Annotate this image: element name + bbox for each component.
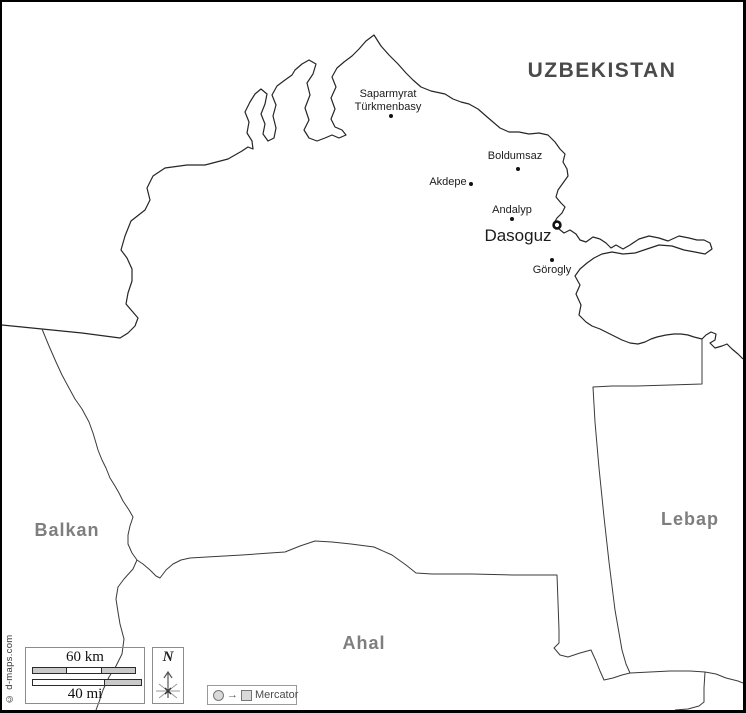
scale-bar-box: 60 km 40 mi <box>25 647 145 704</box>
city-label-boldumsaz: Boldumsaz <box>488 150 542 163</box>
scale-segment <box>33 668 66 673</box>
scale-bar-mi <box>32 679 142 686</box>
capital-label-dasoguz: Dasoguz <box>484 226 551 246</box>
city-label-line1: Saparmyrat <box>360 88 417 100</box>
bottom-right-border-path <box>675 672 705 710</box>
scale-segment <box>66 668 100 673</box>
globe-circle-icon <box>213 690 224 701</box>
map-frame: UZBEKISTAN Balkan Lebap Ahal Saparmyrat … <box>0 0 746 713</box>
scale-bar-km <box>32 667 136 674</box>
scale-segment <box>101 668 135 673</box>
international-border-path <box>2 35 743 359</box>
city-dot-akdepe <box>469 182 473 186</box>
north-compass-box: N <box>152 647 184 704</box>
province-label-ahal: Ahal <box>342 633 385 654</box>
arrow-right-icon: → <box>227 691 238 700</box>
city-dot-andalyp <box>510 217 514 221</box>
country-label-uzbekistan: UZBEKISTAN <box>528 59 677 83</box>
city-label-line2: Türkmenbasy <box>355 101 422 113</box>
ahal-border-path <box>137 541 743 683</box>
province-label-balkan: Balkan <box>34 520 99 541</box>
projected-square-icon <box>241 690 252 701</box>
province-label-lebap: Lebap <box>661 509 719 530</box>
scale-segment <box>33 680 104 685</box>
city-label-saparmyrat-turkmenbasy: Saparmyrat Türkmenbasy <box>355 88 422 114</box>
city-label-gorogly: Görogly <box>533 264 572 277</box>
north-label: N <box>153 648 183 666</box>
lebap-border-path <box>593 339 702 673</box>
copyright-credit: © d-maps.com <box>4 632 15 704</box>
compass-rose-icon <box>153 666 183 702</box>
projection-label: Mercator <box>255 689 298 701</box>
scale-mi-label: 40 mi <box>26 686 144 703</box>
scale-km-label: 60 km <box>26 649 144 666</box>
city-dot-gorogly <box>550 258 554 262</box>
scale-segment <box>104 680 141 685</box>
projection-legend-box: → Mercator <box>207 685 297 705</box>
city-label-akdepe: Akdepe <box>429 176 466 189</box>
capital-symbol-dasoguz <box>554 222 561 229</box>
city-label-andalyp: Andalyp <box>492 204 532 217</box>
city-dot-boldumsaz <box>516 167 520 171</box>
city-dot-saparmyrat-turkmenbasy <box>389 114 393 118</box>
